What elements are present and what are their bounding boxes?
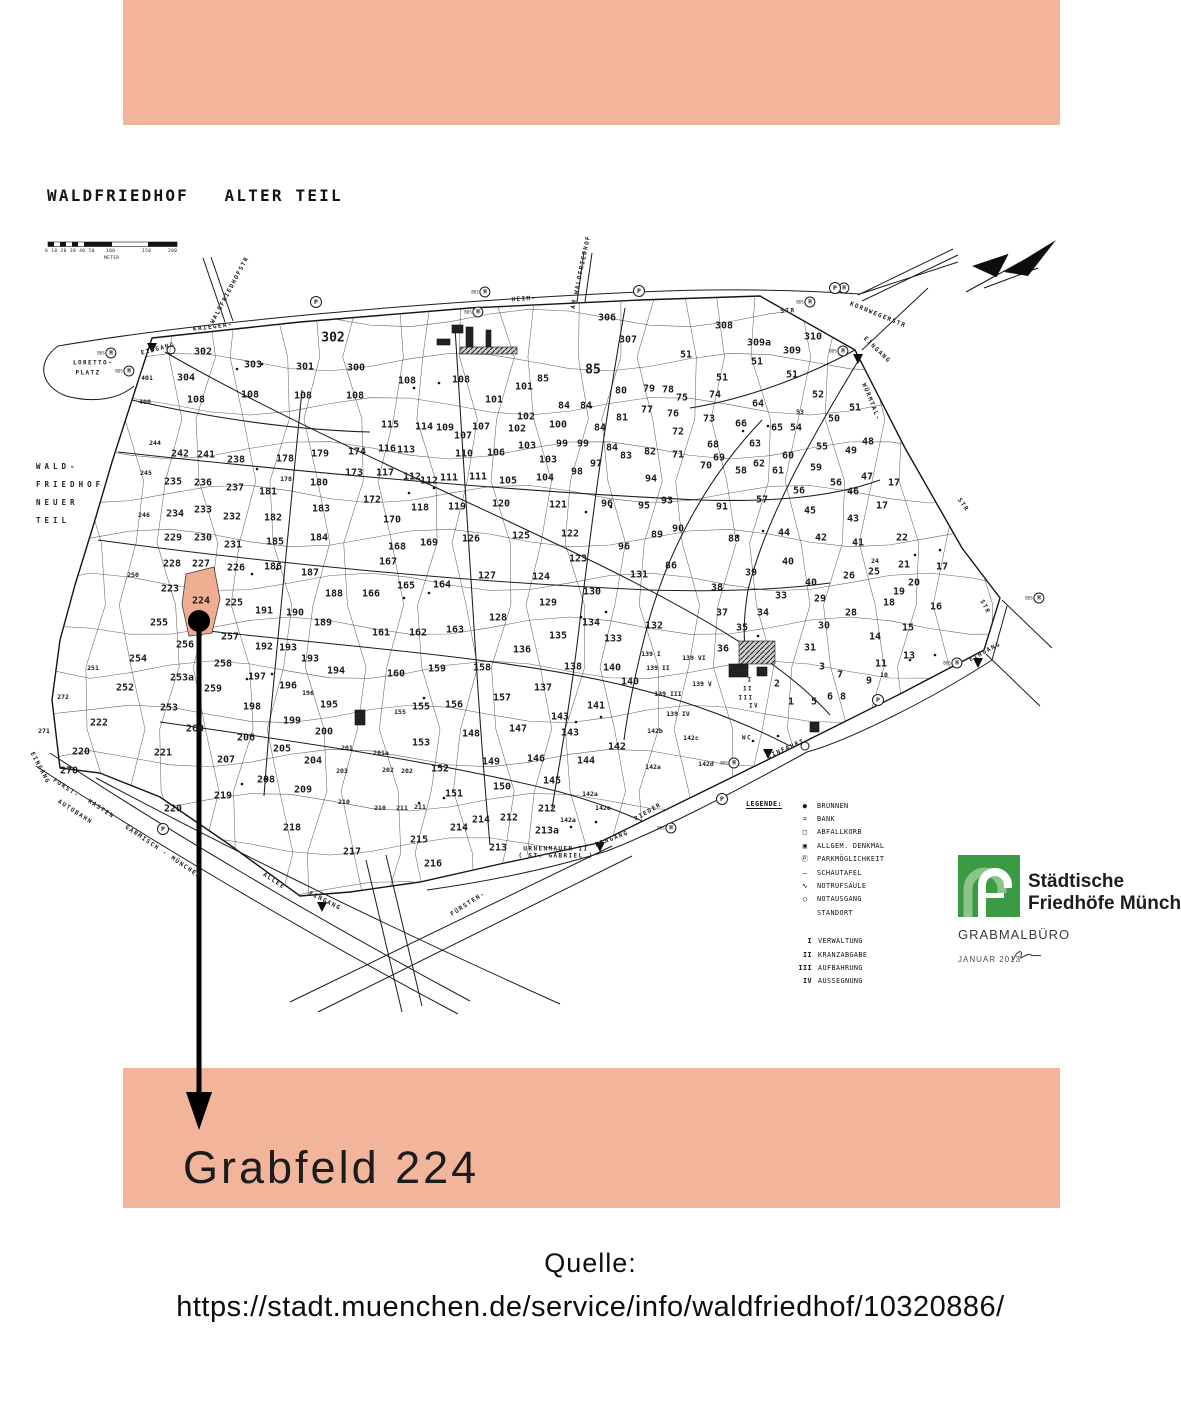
neighbor-cemetery-line: NEUER	[36, 494, 104, 512]
legend-item: —SCHAUTAFEL	[798, 866, 884, 879]
bank-lines-icon: =	[798, 815, 812, 823]
friedhoefe-logo-icon	[958, 855, 1020, 917]
legend-item-label: NOTAUSGANG	[817, 895, 862, 903]
room-numeral: I	[798, 937, 812, 945]
logo-line1: Städtische	[1028, 871, 1181, 893]
legend-item-label: PARKMÖGLICHKEIT	[817, 855, 884, 863]
legend-room-item: IVERWALTUNG	[798, 935, 884, 948]
legend-room-label: VERWALTUNG	[818, 937, 863, 945]
room-numeral: IV	[798, 977, 812, 985]
schautafel-bar-icon: —	[798, 869, 812, 877]
legend-room-item: IIIAUFBAHRUNG	[798, 961, 884, 974]
notrufsaeule-mark-icon: ∿	[798, 882, 812, 890]
legend-item: ⓅPARKMÖGLICHKEIT	[798, 853, 884, 866]
notausgang-circle-icon	[801, 742, 809, 750]
notausgang-circle-icon: ○	[798, 895, 812, 903]
legend-item: ▣ALLGEM. DENKMAL	[798, 839, 884, 852]
scale-unit: METER	[104, 256, 120, 261]
entrance-triangle-icon	[317, 902, 327, 912]
parken-circle-p-icon: Ⓟ	[798, 854, 812, 864]
neighbor-cemetery-label: WALD-FRIEDHOFNEUERTEIL	[36, 458, 104, 530]
legend-title: LEGENDE:	[746, 800, 782, 809]
scale-ticks: 0 10 20 30 40 50	[45, 249, 95, 254]
legend-item-label: STANDORT	[817, 909, 853, 917]
legend-item-label: BANK	[817, 815, 835, 823]
scale-bar	[48, 242, 177, 247]
neighbor-cemetery-line: WALD-	[36, 458, 104, 476]
source-block: Quelle: https://stadt.muenchen.de/servic…	[0, 1248, 1181, 1324]
legend-item-label: ALLGEM. DENKMAL	[817, 842, 884, 850]
brunnen-dot-icon: ●	[798, 802, 812, 810]
scale-100: 100	[106, 249, 115, 254]
legend-item-label: SCHAUTAFEL	[817, 869, 862, 877]
map-title: WALDFRIEDHOF ALTER TEIL	[47, 186, 343, 205]
grabfeld-callout-label: Grabfeld 224	[183, 1142, 479, 1194]
map-legend: LEGENDE: ●BRUNNEN=BANK□ABFALLKORB▣ALLGEM…	[746, 799, 884, 988]
scale-200: 200	[168, 249, 177, 254]
legend-room-label: KRANZABGABE	[818, 951, 867, 959]
legend-item: □ABFALLKORB	[798, 826, 884, 839]
legend-item: ○NOTAUSGANG	[798, 893, 884, 906]
legend-item: STANDORT	[798, 906, 884, 919]
legend-item: =BANK	[798, 812, 884, 825]
source-label: Quelle:	[0, 1248, 1181, 1279]
scale-150: 150	[142, 249, 151, 254]
legend-room-label: AUSSEGNUNG	[818, 977, 863, 985]
neighbor-cemetery-line: TEIL	[36, 512, 104, 530]
grabmalbuero-label: GRABMALBÜRO	[958, 927, 1070, 942]
cemetery-map	[0, 0, 1181, 1417]
legend-item-label: NOTRUFSÄULE	[817, 882, 866, 890]
legend-item-label: ABFALLKORB	[817, 828, 862, 836]
legend-room-item: IVAUSSEGNUNG	[798, 975, 884, 988]
legend-item: ∿NOTRUFSÄULE	[798, 879, 884, 892]
legend-item: ●BRUNNEN	[798, 799, 884, 812]
legend-room-item: IIKRANZABGABE	[798, 948, 884, 961]
neighbor-cemetery-line: FRIEDHOF	[36, 476, 104, 494]
denkmal-square-icon: ▣	[798, 842, 812, 850]
source-url: https://stadt.muenchen.de/service/info/w…	[0, 1291, 1181, 1324]
abfallkorb-square-icon: □	[798, 828, 812, 836]
logo-text: Städtische Friedhöfe München	[1028, 871, 1181, 915]
logo-line2: Friedhöfe München	[1028, 893, 1181, 915]
page: WALDFRIEDHOF ALTER TEIL 0 10 20 30 40 50…	[0, 0, 1181, 1417]
north-compass-icon	[966, 240, 1056, 292]
room-numeral: III	[798, 964, 812, 972]
room-numeral: II	[798, 951, 812, 959]
legend-item-label: BRUNNEN	[817, 802, 848, 810]
legend-room-label: AUFBAHRUNG	[818, 964, 863, 972]
signature-icon	[1010, 947, 1044, 965]
